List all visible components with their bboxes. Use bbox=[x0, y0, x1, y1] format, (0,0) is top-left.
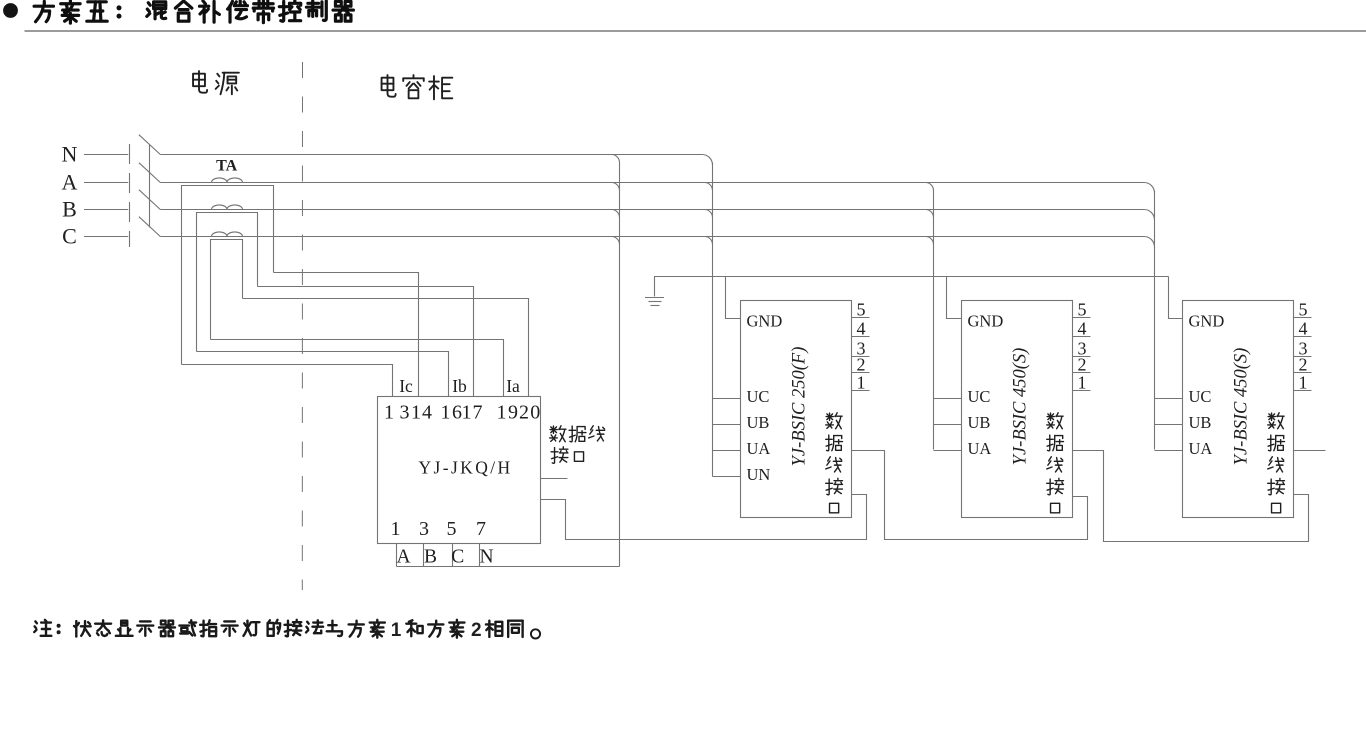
svg-text:3: 3 bbox=[400, 402, 410, 424]
svg-text:1: 1 bbox=[391, 518, 401, 540]
svg-text:UN: UN bbox=[747, 465, 771, 484]
svg-text:GND: GND bbox=[747, 312, 783, 331]
svg-text:C: C bbox=[62, 224, 77, 249]
svg-text:5: 5 bbox=[1078, 300, 1087, 320]
svg-text:2: 2 bbox=[1299, 355, 1308, 375]
svg-text:0: 0 bbox=[530, 402, 540, 424]
svg-text:1: 1 bbox=[391, 620, 402, 641]
svg-text:YJ-BSIC 250(F): YJ-BSIC 250(F) bbox=[789, 347, 809, 467]
svg-text:2: 2 bbox=[1078, 355, 1087, 375]
svg-text:UC: UC bbox=[968, 387, 991, 406]
svg-text:3: 3 bbox=[419, 518, 429, 540]
svg-text:UA: UA bbox=[747, 439, 771, 458]
svg-text:7: 7 bbox=[473, 402, 483, 424]
svg-text:1: 1 bbox=[1078, 373, 1087, 393]
svg-text:1: 1 bbox=[441, 402, 451, 424]
svg-text:N: N bbox=[62, 142, 78, 167]
svg-text:YJ-BSIC 450(S): YJ-BSIC 450(S) bbox=[1231, 348, 1251, 466]
svg-text:UC: UC bbox=[1189, 387, 1212, 406]
svg-text:B: B bbox=[62, 197, 77, 222]
svg-text:Ic: Ic bbox=[399, 376, 413, 396]
svg-text:2: 2 bbox=[471, 620, 482, 641]
svg-text:9: 9 bbox=[508, 402, 518, 424]
svg-text:UA: UA bbox=[968, 439, 992, 458]
svg-text:5: 5 bbox=[447, 518, 457, 540]
svg-text:GND: GND bbox=[968, 312, 1004, 331]
svg-text:A: A bbox=[62, 170, 78, 195]
svg-text:C: C bbox=[451, 547, 464, 568]
svg-text:1: 1 bbox=[384, 402, 394, 424]
svg-text:N: N bbox=[479, 547, 493, 568]
svg-text:TA: TA bbox=[216, 158, 237, 175]
svg-text:YJ-BSIC 450(S): YJ-BSIC 450(S) bbox=[1010, 348, 1030, 466]
svg-text:6: 6 bbox=[452, 402, 462, 424]
svg-text:B: B bbox=[424, 547, 437, 568]
svg-text:4: 4 bbox=[857, 319, 866, 339]
svg-text:2: 2 bbox=[857, 355, 866, 375]
svg-text:UC: UC bbox=[747, 387, 770, 406]
svg-text:1: 1 bbox=[1299, 373, 1308, 393]
svg-text:1: 1 bbox=[411, 402, 421, 424]
svg-text:UB: UB bbox=[1189, 413, 1212, 432]
svg-text:A: A bbox=[397, 547, 411, 568]
svg-text:2: 2 bbox=[519, 402, 529, 424]
svg-text:UB: UB bbox=[968, 413, 991, 432]
svg-text:Ia: Ia bbox=[506, 376, 520, 396]
svg-text:Ib: Ib bbox=[452, 376, 467, 396]
svg-text:4: 4 bbox=[1078, 319, 1087, 339]
svg-text:4: 4 bbox=[1299, 319, 1308, 339]
svg-text:4: 4 bbox=[422, 402, 432, 424]
svg-text:UB: UB bbox=[747, 413, 770, 432]
svg-text:1: 1 bbox=[497, 402, 507, 424]
svg-text:UA: UA bbox=[1189, 439, 1213, 458]
svg-text:7: 7 bbox=[476, 518, 486, 540]
svg-text:5: 5 bbox=[857, 300, 866, 320]
svg-text:GND: GND bbox=[1189, 312, 1225, 331]
svg-text:5: 5 bbox=[1299, 300, 1308, 320]
svg-text:YJ-JKQ/H: YJ-JKQ/H bbox=[418, 458, 512, 478]
svg-text:1: 1 bbox=[857, 373, 866, 393]
svg-text:1: 1 bbox=[462, 402, 472, 424]
